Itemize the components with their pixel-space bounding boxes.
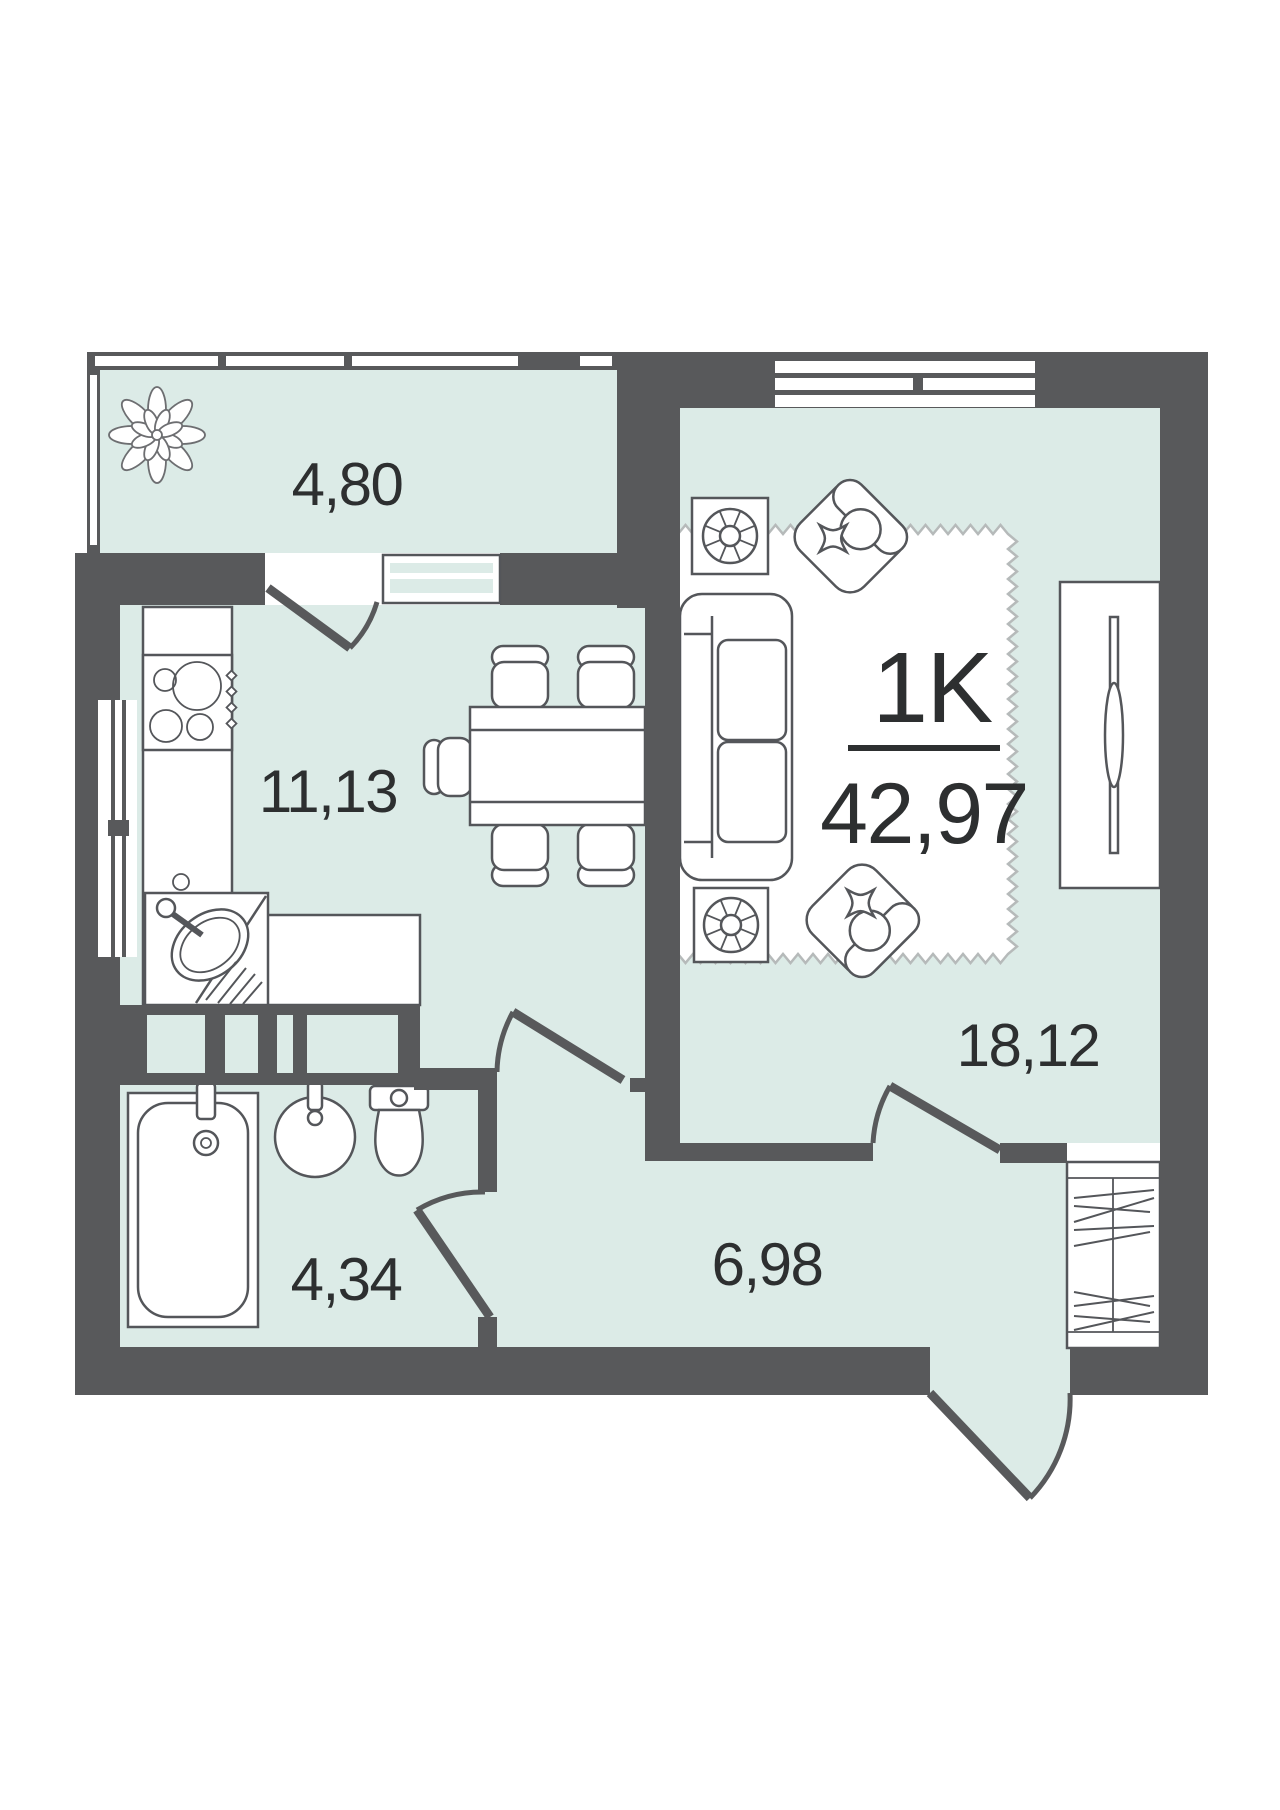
shoe-cabinet	[1067, 1162, 1160, 1348]
chair	[578, 662, 634, 708]
total-area-label: 42,97	[820, 766, 1028, 862]
side-table-bottom	[694, 888, 768, 962]
living-doorway-floor	[873, 1143, 1000, 1161]
side-table-top	[692, 498, 768, 574]
living-area-label: 18,12	[957, 1012, 1100, 1079]
wardrobe	[1060, 582, 1160, 888]
living-room-window	[775, 361, 1035, 407]
stove-icon	[143, 655, 236, 750]
chair	[492, 824, 548, 870]
bathroom-area-label: 4,34	[291, 1246, 402, 1313]
chair	[438, 738, 472, 796]
plant-icon	[109, 387, 205, 483]
kitchen-sink-icon	[145, 874, 268, 1005]
dining-table	[470, 707, 645, 825]
balcony-area-label: 4,80	[292, 451, 403, 518]
kitchen-window	[98, 700, 137, 957]
kitchen-area-label: 11,13	[259, 758, 397, 825]
apartment-type-label: 1K	[872, 632, 992, 744]
hallway-area-label: 6,98	[712, 1231, 823, 1298]
toilet-icon	[370, 1086, 428, 1176]
entrance-doorway-floor	[930, 1347, 1070, 1394]
chair	[492, 662, 548, 708]
chair	[578, 824, 634, 870]
floor-plan: 4,80 11,13 1K 42,97 18,12 6,98 4,34	[0, 0, 1280, 1810]
sofa	[680, 594, 792, 880]
bathtub-icon	[128, 1083, 258, 1327]
balcony-door-window-unit	[383, 555, 500, 603]
floor-plan-page: 4,80 11,13 1K 42,97 18,12 6,98 4,34	[0, 0, 1280, 1810]
